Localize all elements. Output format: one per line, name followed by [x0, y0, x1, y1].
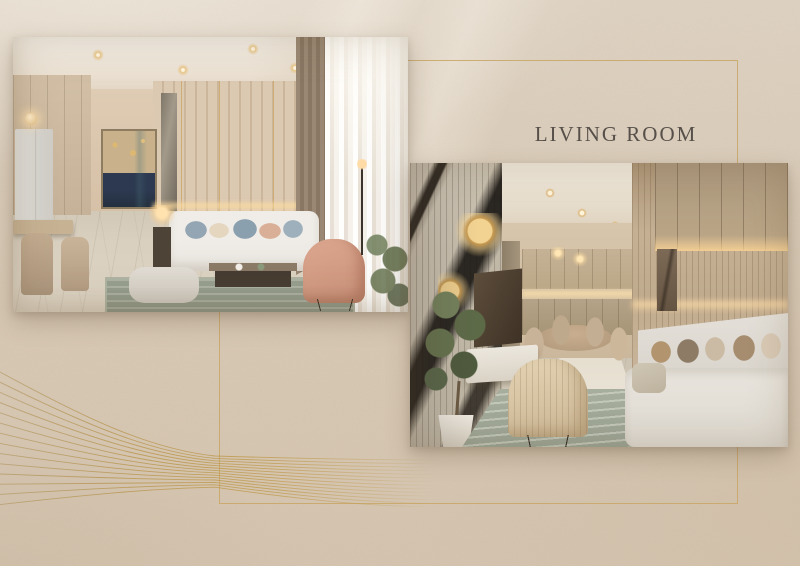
photo-vignette	[13, 37, 408, 312]
photo-living-room-view-1	[13, 37, 408, 312]
photo-vignette	[410, 163, 788, 447]
page-title: LIVING ROOM	[535, 122, 698, 147]
presentation-slide: LIVING ROOM	[0, 0, 800, 566]
photo-living-room-view-2	[410, 163, 788, 447]
